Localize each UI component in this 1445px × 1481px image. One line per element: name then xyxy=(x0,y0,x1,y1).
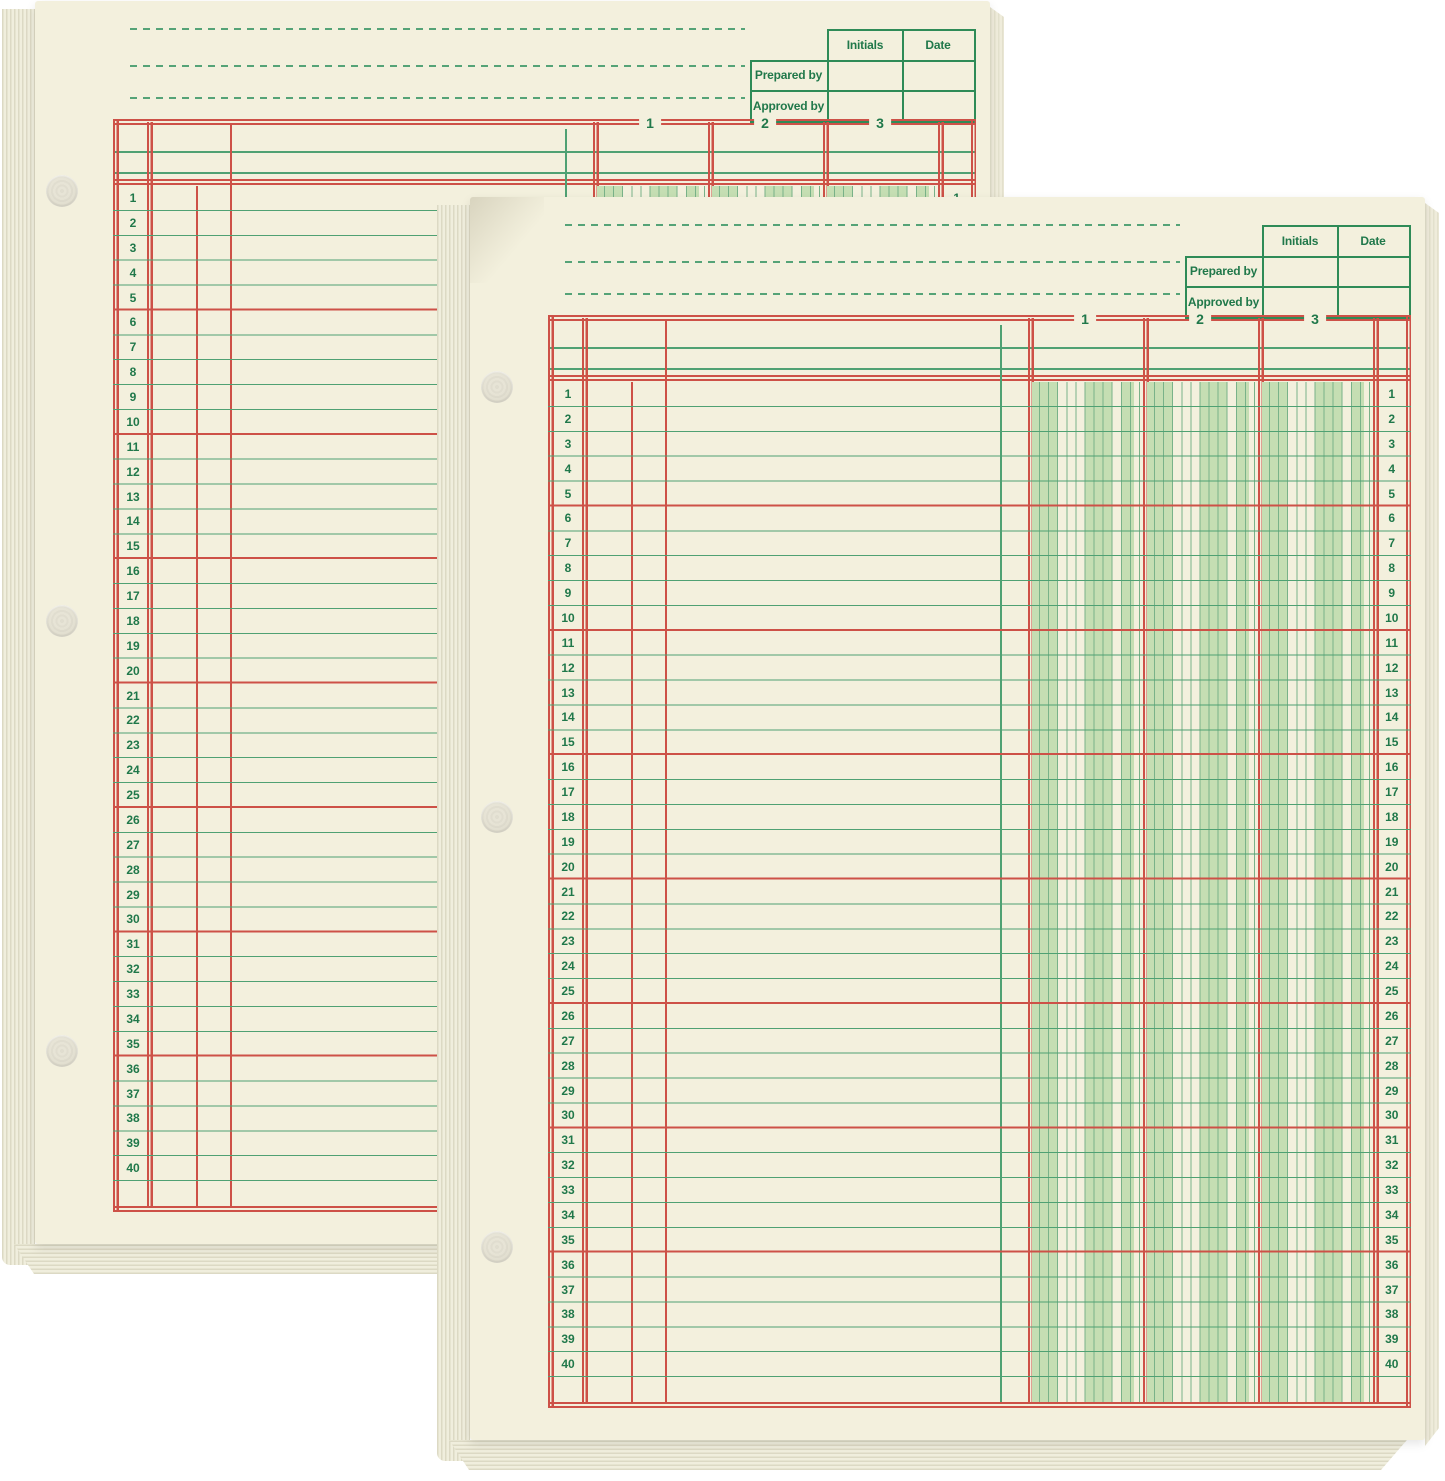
row-number: 6 xyxy=(1379,506,1406,531)
row-number: 4 xyxy=(120,261,147,286)
title-rule-dashed xyxy=(130,28,745,30)
row-number: 20 xyxy=(555,855,582,880)
row-number: 24 xyxy=(1379,954,1406,979)
hole-punch xyxy=(481,371,513,403)
row-number: 40 xyxy=(120,1156,147,1181)
row-number: 35 xyxy=(120,1032,147,1057)
row-number: 2 xyxy=(555,407,582,432)
ruling-line xyxy=(631,382,633,1402)
row-number-column-left: 1234567891011121314151617181920212223242… xyxy=(555,382,582,1402)
row-number: 16 xyxy=(120,559,147,584)
row-number: 35 xyxy=(555,1228,582,1253)
row-number: 35 xyxy=(1379,1228,1406,1253)
header-rule xyxy=(113,151,976,153)
row-number: 33 xyxy=(120,982,147,1007)
row-number: 25 xyxy=(120,783,147,808)
row-number: 27 xyxy=(120,833,147,858)
grid-bottom-border xyxy=(548,1402,1411,1408)
row-number: 23 xyxy=(120,733,147,758)
row-number: 39 xyxy=(1379,1327,1406,1352)
row-number: 21 xyxy=(1379,880,1406,905)
row-number: 17 xyxy=(120,584,147,609)
row-number: 6 xyxy=(120,310,147,335)
row-number: 33 xyxy=(555,1178,582,1203)
row-number: 33 xyxy=(1379,1178,1406,1203)
column-header-number: 3 xyxy=(1304,311,1326,327)
hole-punch xyxy=(481,801,513,833)
row-number: 7 xyxy=(120,335,147,360)
row-number: 24 xyxy=(555,954,582,979)
row-number: 27 xyxy=(1379,1029,1406,1054)
column-header-number: 3 xyxy=(869,115,891,131)
ledger-pad-front: Initials Date Prepared by Approved by 1 … xyxy=(437,197,1439,1477)
row-number: 29 xyxy=(1379,1079,1406,1104)
row-number: 29 xyxy=(120,883,147,908)
approval-header-initials: Initials xyxy=(828,30,902,60)
header-rule xyxy=(113,172,976,174)
row-number: 5 xyxy=(120,286,147,311)
row-number: 10 xyxy=(555,606,582,631)
header-bottom-border xyxy=(113,179,976,185)
row-number: 20 xyxy=(1379,855,1406,880)
row-number: 11 xyxy=(555,631,582,656)
row-number: 18 xyxy=(1379,805,1406,830)
ruling-line xyxy=(196,186,198,1206)
row-number: 13 xyxy=(555,681,582,706)
row-number: 36 xyxy=(1379,1253,1406,1278)
row-number: 30 xyxy=(120,907,147,932)
row-number: 31 xyxy=(120,932,147,957)
row-number: 37 xyxy=(120,1082,147,1107)
row-number: 36 xyxy=(555,1253,582,1278)
approval-header-initials: Initials xyxy=(1263,226,1337,256)
row-number: 38 xyxy=(1379,1302,1406,1327)
pad-stack-right-edge xyxy=(1425,203,1439,1446)
row-number: 5 xyxy=(555,482,582,507)
row-number: 22 xyxy=(555,904,582,929)
row-number: 37 xyxy=(555,1278,582,1303)
money-column-stripes xyxy=(1146,382,1255,1402)
column-header-number: 1 xyxy=(1074,311,1096,327)
row-number: 18 xyxy=(120,609,147,634)
row-number: 30 xyxy=(555,1103,582,1128)
title-rule-dashed xyxy=(130,65,745,67)
title-rule-dashed xyxy=(130,97,745,99)
row-number: 1 xyxy=(1379,382,1406,407)
row-number: 39 xyxy=(555,1327,582,1352)
row-number: 4 xyxy=(555,457,582,482)
hole-punch xyxy=(481,1231,513,1263)
row-number: 32 xyxy=(555,1153,582,1178)
row-number: 25 xyxy=(1379,979,1406,1004)
column-header-number: 1 xyxy=(639,115,661,131)
row-number: 22 xyxy=(120,708,147,733)
row-number: 8 xyxy=(1379,556,1406,581)
row-number: 15 xyxy=(1379,730,1406,755)
ruling-line xyxy=(147,122,153,1206)
ruling-line xyxy=(1000,325,1002,1402)
row-number: 13 xyxy=(120,485,147,510)
row-number: 14 xyxy=(120,509,147,534)
row-number: 12 xyxy=(555,656,582,681)
row-number: 16 xyxy=(555,755,582,780)
row-number: 3 xyxy=(1379,432,1406,457)
hole-punch xyxy=(46,605,78,637)
row-number: 26 xyxy=(1379,1004,1406,1029)
row-number: 13 xyxy=(1379,681,1406,706)
pad-stack-left-edge xyxy=(437,205,470,1461)
row-number: 7 xyxy=(555,531,582,556)
row-number: 21 xyxy=(120,684,147,709)
row-number: 19 xyxy=(1379,830,1406,855)
row-number: 28 xyxy=(1379,1054,1406,1079)
ruling-line xyxy=(230,125,232,1206)
row-number-column-right: 1234567891011121314151617181920212223242… xyxy=(1379,382,1406,1402)
row-number: 10 xyxy=(1379,606,1406,631)
row-number: 40 xyxy=(555,1352,582,1377)
row-number: 34 xyxy=(1379,1203,1406,1228)
grid-right-border xyxy=(1406,315,1412,1408)
row-number: 11 xyxy=(1379,631,1406,656)
ruling-line xyxy=(1409,225,1411,319)
row-number: 34 xyxy=(555,1203,582,1228)
approval-row-prepared-label: Prepared by xyxy=(751,60,826,90)
column-header-number: 2 xyxy=(1189,311,1211,327)
row-number: 14 xyxy=(555,705,582,730)
column-header-number: 2 xyxy=(754,115,776,131)
header-rule xyxy=(548,368,1411,370)
row-number: 38 xyxy=(120,1106,147,1131)
row-number: 14 xyxy=(1379,705,1406,730)
row-number: 1 xyxy=(120,186,147,211)
row-number: 19 xyxy=(120,634,147,659)
row-number: 28 xyxy=(555,1054,582,1079)
row-number: 22 xyxy=(1379,904,1406,929)
row-number: 36 xyxy=(120,1057,147,1082)
money-column-stripes xyxy=(1261,382,1370,1402)
money-column-stripes xyxy=(1031,382,1140,1402)
row-number: 8 xyxy=(555,556,582,581)
approval-row-prepared-label: Prepared by xyxy=(1186,256,1261,286)
row-number: 32 xyxy=(120,957,147,982)
grid-left-border xyxy=(548,315,554,1408)
row-number: 19 xyxy=(555,830,582,855)
row-number: 17 xyxy=(555,780,582,805)
row-number: 21 xyxy=(555,880,582,905)
row-number: 3 xyxy=(120,236,147,261)
row-number: 10 xyxy=(120,410,147,435)
approval-header-date: Date xyxy=(903,30,973,60)
row-number: 2 xyxy=(1379,407,1406,432)
row-number: 40 xyxy=(1379,1352,1406,1377)
row-number: 18 xyxy=(555,805,582,830)
row-number: 2 xyxy=(120,211,147,236)
row-number: 5 xyxy=(1379,482,1406,507)
row-number: 34 xyxy=(120,1007,147,1032)
row-number: 9 xyxy=(555,581,582,606)
row-number: 26 xyxy=(555,1004,582,1029)
ruling-line xyxy=(665,321,667,1402)
row-number: 38 xyxy=(555,1302,582,1327)
hole-punch xyxy=(46,1035,78,1067)
row-number: 3 xyxy=(555,432,582,457)
row-number: 31 xyxy=(555,1128,582,1153)
header-bottom-border xyxy=(548,375,1411,381)
row-number: 6 xyxy=(555,506,582,531)
row-number-column-left: 1234567891011121314151617181920212223242… xyxy=(120,186,147,1206)
row-number: 24 xyxy=(120,758,147,783)
row-number: 1 xyxy=(555,382,582,407)
row-number: 15 xyxy=(120,534,147,559)
row-number: 29 xyxy=(555,1079,582,1104)
row-number: 37 xyxy=(1379,1278,1406,1303)
title-rule-dashed xyxy=(565,261,1180,263)
grid-left-border xyxy=(113,119,119,1212)
row-number: 9 xyxy=(120,385,147,410)
row-number: 9 xyxy=(1379,581,1406,606)
approval-header-date: Date xyxy=(1338,226,1408,256)
row-number: 26 xyxy=(120,808,147,833)
header-rule xyxy=(548,347,1411,349)
row-number: 4 xyxy=(1379,457,1406,482)
row-number: 15 xyxy=(555,730,582,755)
title-rule-dashed xyxy=(565,224,1180,226)
ruling-line xyxy=(974,29,976,123)
row-number: 20 xyxy=(120,659,147,684)
row-number: 23 xyxy=(1379,929,1406,954)
row-number: 30 xyxy=(1379,1103,1406,1128)
row-number: 7 xyxy=(1379,531,1406,556)
pad-stack-left-edge xyxy=(2,9,35,1265)
row-number: 39 xyxy=(120,1131,147,1156)
row-number: 11 xyxy=(120,435,147,460)
row-number: 17 xyxy=(1379,780,1406,805)
row-number: 16 xyxy=(1379,755,1406,780)
row-number: 12 xyxy=(120,460,147,485)
hole-punch xyxy=(46,175,78,207)
row-number: 12 xyxy=(1379,656,1406,681)
row-number: 23 xyxy=(555,929,582,954)
page-curl-corner xyxy=(470,197,544,283)
row-number: 32 xyxy=(1379,1153,1406,1178)
grid-top-border xyxy=(548,315,1411,321)
title-rule-dashed xyxy=(565,293,1180,295)
row-number: 8 xyxy=(120,360,147,385)
row-number: 25 xyxy=(555,979,582,1004)
ledger-sheet: Initials Date Prepared by Approved by 1 … xyxy=(470,197,1425,1440)
row-number: 27 xyxy=(555,1029,582,1054)
ruling-line xyxy=(582,318,588,1402)
row-number: 31 xyxy=(1379,1128,1406,1153)
row-number: 28 xyxy=(120,858,147,883)
pad-stack-bottom-edge xyxy=(449,1440,1407,1470)
grid-top-border xyxy=(113,119,976,125)
